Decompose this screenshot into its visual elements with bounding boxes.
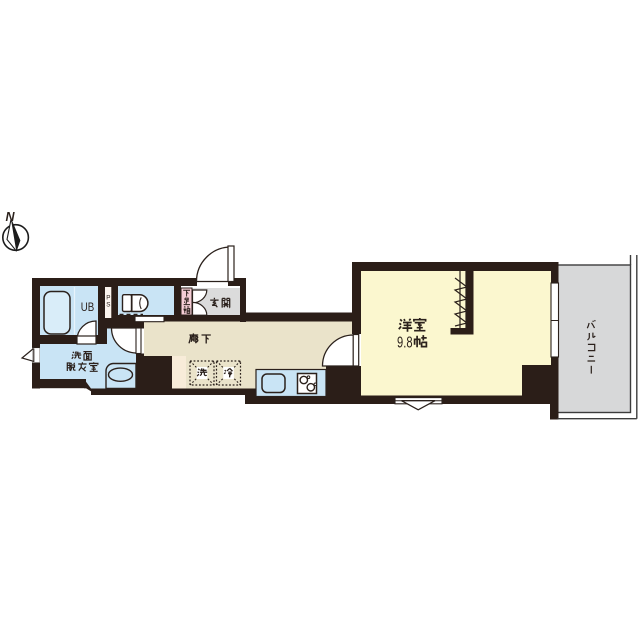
svg-text:N: N <box>5 210 15 224</box>
svg-text:S: S <box>106 301 110 308</box>
svg-text:9.8: 9.8 <box>397 335 413 352</box>
svg-text:UB: UB <box>81 300 95 314</box>
